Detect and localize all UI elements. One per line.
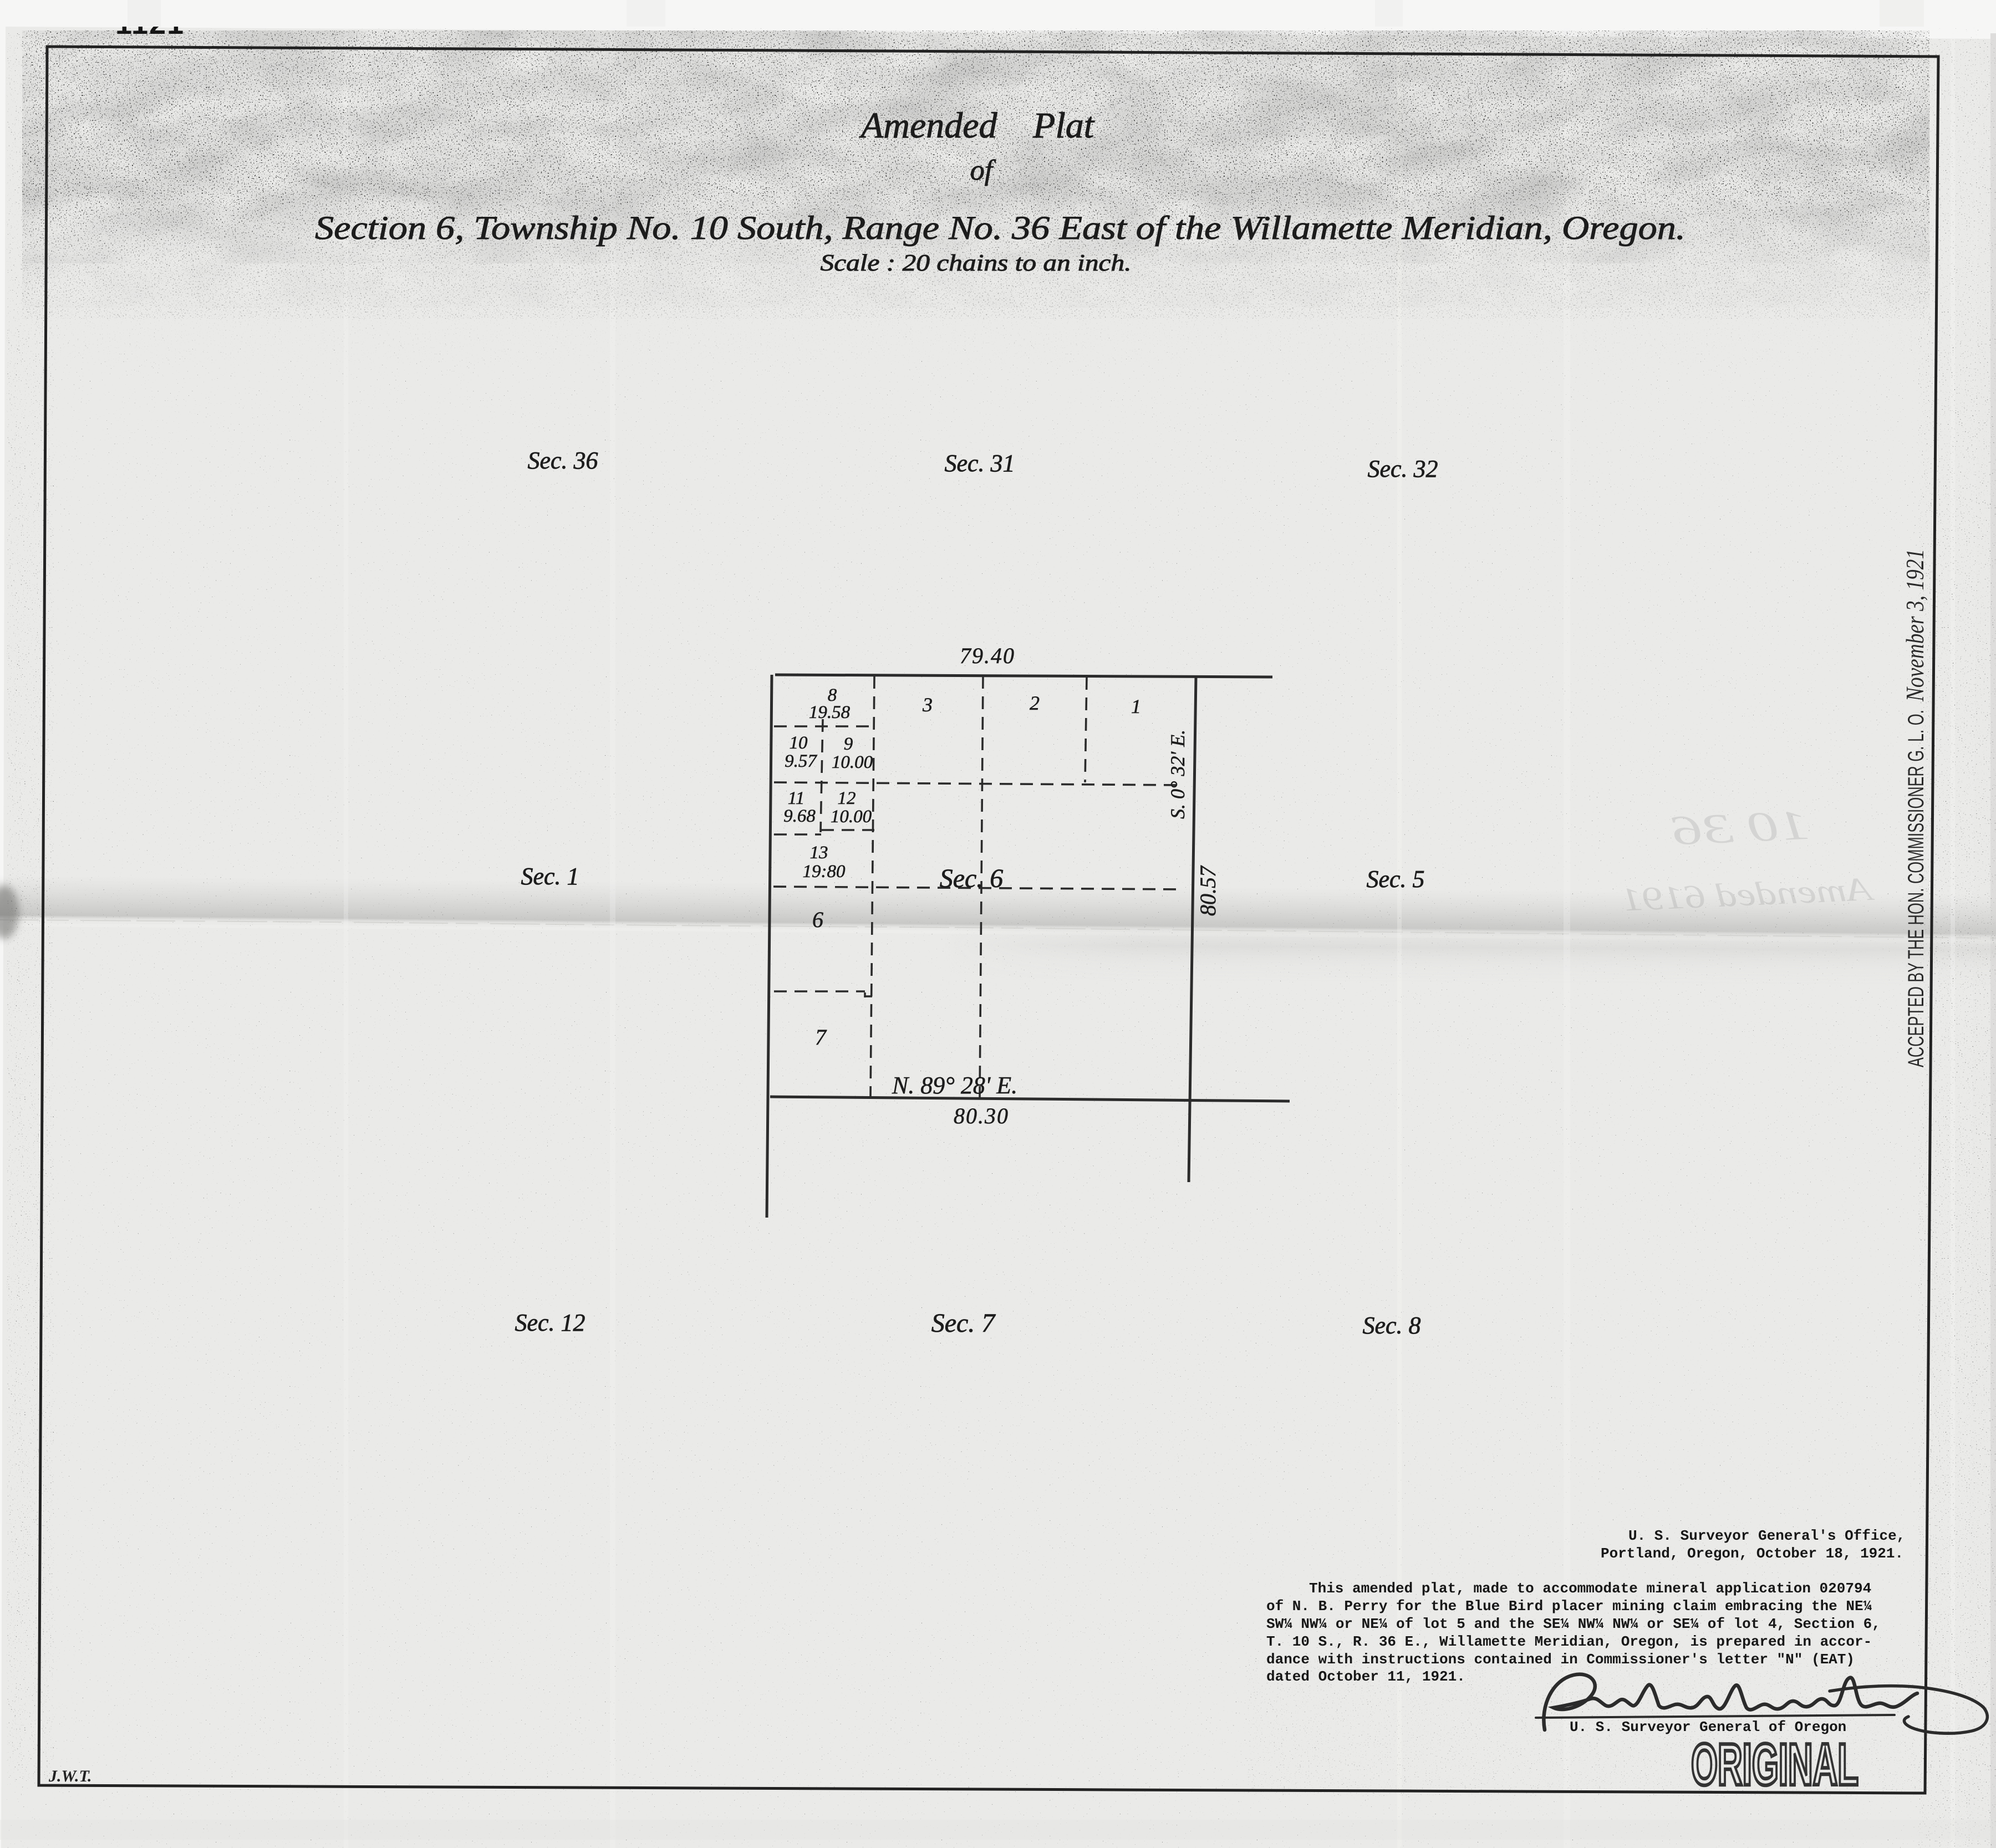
svg-text:13: 13: [810, 843, 828, 863]
svg-text:2: 2: [1030, 692, 1040, 714]
svg-text:Portland, Oregon, October 18,: Portland, Oregon, October 18, 1921.: [1601, 1545, 1903, 1562]
svg-text:T. 10 S., R. 36 E., Willamette: T. 10 S., R. 36 E., Willamette Meridian,…: [1266, 1633, 1872, 1650]
svg-text:80.57: 80.57: [1195, 865, 1220, 916]
svg-text:6: 6: [812, 907, 823, 932]
svg-text:Sec. 36: Sec. 36: [527, 447, 598, 474]
svg-text:10: 10: [790, 733, 808, 753]
svg-text:9: 9: [844, 734, 853, 754]
svg-text:Sec. 8: Sec. 8: [1362, 1312, 1420, 1339]
svg-text:S. 0° 32' E.: S. 0° 32' E.: [1167, 730, 1189, 819]
svg-text:N. 89° 28' E.: N. 89° 28' E.: [892, 1072, 1017, 1099]
svg-text:79.40: 79.40: [960, 643, 1015, 668]
svg-text:3: 3: [922, 694, 933, 716]
svg-text:U. S. Surveyor General's Offic: U. S. Surveyor General's Office,: [1628, 1528, 1905, 1544]
svg-text:10.00: 10.00: [832, 752, 873, 772]
svg-text:Scale : 20 chains to an inch.: Scale : 20 chains to an inch.: [821, 251, 1132, 276]
svg-text:Sec. 12: Sec. 12: [515, 1309, 585, 1336]
svg-text:Sec. 6: Sec. 6: [940, 864, 1004, 893]
svg-text:Sec. 32: Sec. 32: [1367, 455, 1438, 482]
svg-text:Sec. 5: Sec. 5: [1366, 866, 1424, 893]
svg-text:ACCEPTED BY THE HON. COMMISSIO: ACCEPTED BY THE HON. COMMISSIONER G. L. …: [1904, 710, 1928, 1067]
svg-text:9.68: 9.68: [783, 806, 816, 826]
svg-text:of: of: [970, 155, 996, 186]
svg-text:9.57: 9.57: [785, 751, 817, 771]
svg-text:November 3, 1921: November 3, 1921: [1901, 549, 1929, 702]
svg-text:Sec. 7: Sec. 7: [931, 1309, 996, 1338]
svg-text:dance with instructions contai: dance with instructions contained in Com…: [1266, 1651, 1855, 1668]
svg-text:80.30: 80.30: [954, 1103, 1009, 1128]
svg-text:12: 12: [838, 788, 856, 808]
svg-text:19.58: 19.58: [809, 702, 851, 722]
svg-text:1: 1: [1131, 695, 1141, 717]
svg-text:J.W.T.: J.W.T.: [48, 1767, 92, 1785]
svg-text:Section 6, Township No. 10 Sou: Section 6, Township No. 10 South, Range …: [315, 210, 1686, 246]
svg-text:10 36: 10 36: [1671, 802, 1810, 854]
svg-text:Amended Plat: Amended Plat: [859, 105, 1095, 146]
svg-text:11: 11: [788, 788, 805, 808]
svg-text:7: 7: [815, 1025, 827, 1050]
svg-text:19:80: 19:80: [803, 862, 846, 882]
svg-text:Sec. 1: Sec. 1: [521, 863, 579, 890]
svg-text:ORIGINAL: ORIGINAL: [1691, 1731, 1858, 1797]
svg-text:Sec. 31: Sec. 31: [944, 450, 1015, 477]
svg-text:This amended plat, made to acc: This amended plat, made to accommodate m…: [1309, 1580, 1871, 1597]
svg-text:10.00: 10.00: [831, 807, 872, 827]
svg-text:SW¼ NW¼ or NE¼ of lot 5 and th: SW¼ NW¼ or NE¼ of lot 5 and the SE¼ NW¼ …: [1266, 1616, 1881, 1632]
svg-text:of N. B. Perry for the Blue Bi: of N. B. Perry for the Blue Bird placer …: [1266, 1598, 1872, 1615]
svg-text:dated October 11, 1921.: dated October 11, 1921.: [1266, 1668, 1465, 1685]
